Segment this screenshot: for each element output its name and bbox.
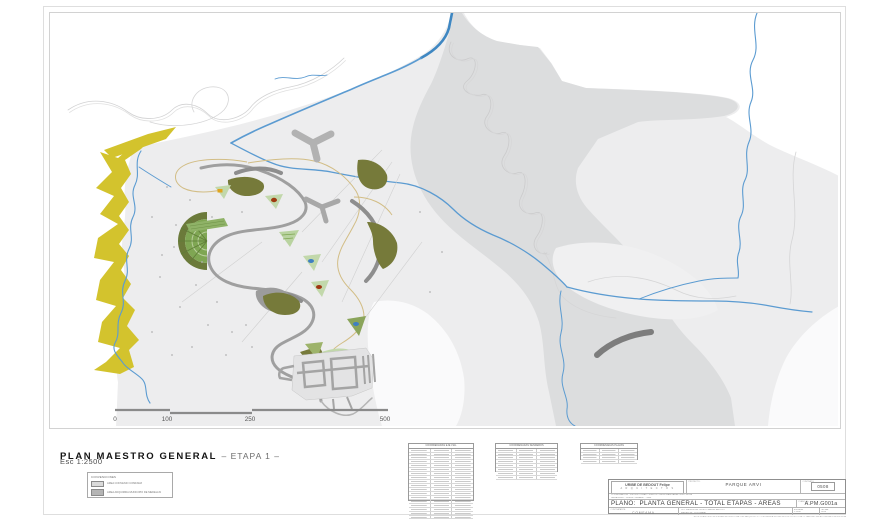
contract-label: CONTRATO:	[803, 481, 815, 483]
architect-box: URIBE DE BEDOUT Felipe A R Q U I T E C T…	[611, 481, 684, 493]
client-cell: CONTRATANTE: COMFAMA	[609, 508, 679, 515]
site-plan-map[interactable]: 0 100 250 500	[50, 13, 838, 426]
coordinate-table-body	[581, 449, 637, 465]
project-cell: PROYECTO: PARQUE ARVI NUCLEO COMFAMA	[687, 480, 801, 493]
legend-label: AREA ADQUIRIDA MUNICIPIO DE MEDELLIN	[107, 491, 161, 494]
coordinate-table-1: COORDENADAS EJE VIAL	[408, 443, 474, 501]
legend-swatch-dark	[91, 489, 104, 496]
client-label: CONTRATANTE:	[611, 509, 626, 511]
legend-item: AREA ADQUIRIDA MUNICIPIO DE MEDELLIN	[91, 489, 169, 496]
plan-title-stage: – ETAPA 1 –	[222, 451, 280, 461]
coordinate-table-body	[496, 449, 557, 481]
coordinate-table-body	[409, 449, 473, 520]
coordinate-table-row	[496, 476, 557, 480]
copyright-note: ESTE PLANO ES PROPIEDAD INTELECTUAL DEL …	[658, 516, 846, 518]
coordinate-table-3: COORDENADAS PLAZAS	[580, 443, 638, 460]
scale-label-0: 0	[113, 416, 117, 423]
legend-item: AREA CONVENIO COMFAMA	[91, 481, 169, 488]
coordinate-table-row	[409, 516, 473, 520]
project-label: PROYECTO:	[689, 481, 701, 483]
scale-label-250: 250	[245, 416, 256, 423]
contract-number: 0508	[811, 482, 834, 491]
drawing-sheet: 0 100 250 500 PLAN MAESTRO GENERAL – ETA…	[0, 0, 882, 526]
title-block: URIBE DE BEDOUT Felipe A R Q U I T E C T…	[608, 479, 846, 514]
title-block-row-2: PLANO: PLANTA GENERAL - TOTAL ETAPAS - A…	[609, 500, 845, 508]
meta-cell: ESCALA: 1:2500 FECHA: 05.08	[793, 508, 845, 515]
legend-title: CONVENCIONES	[91, 475, 169, 479]
consultants-line: PAISAJISMO - DISEÑO URBANO - VIAS	[609, 497, 845, 500]
architect-subtitle: A R Q U I T E C T O S	[614, 487, 681, 490]
date-meta: FECHA: 05.08	[820, 508, 846, 515]
scale-value: 1:2500	[794, 511, 818, 514]
title-block-row-1: URIBE DE BEDOUT Felipe A R Q U I T E C T…	[609, 480, 845, 494]
legend-swatch-light	[91, 481, 104, 488]
scale-label-500: 500	[380, 416, 391, 423]
coordinate-table-2: COORDENADAS SENDEROS	[495, 443, 558, 472]
sheet-code-cell: PLANO No. A.PM.G001a	[797, 500, 845, 507]
date-value: 05.08	[821, 511, 845, 514]
address-cell: CLL 10A SUR No. 30-50 LOMA DE BEDOUT MED…	[679, 508, 793, 515]
scale-label-100: 100	[162, 416, 173, 423]
coordinate-table-row	[581, 460, 637, 464]
sheet-code: A.PM.G001a	[805, 501, 838, 507]
contract-cell: CONTRATO: 0508	[801, 480, 845, 493]
plano-label: PLANO:	[611, 500, 636, 507]
legend-box: CONVENCIONES AREA CONVENIO COMFAMA AREA …	[87, 472, 173, 498]
plano-cell: PLANO: PLANTA GENERAL - TOTAL ETAPAS - A…	[609, 500, 797, 507]
sheet-code-label: PLANO No.	[799, 501, 809, 503]
plan-scale-note: Esc 1:2500	[60, 457, 103, 466]
plano-title: PLANTA GENERAL - TOTAL ETAPAS - AREAS	[640, 500, 781, 507]
legend-label: AREA CONVENIO COMFAMA	[107, 482, 142, 485]
client-name: COMFAMA	[609, 511, 678, 515]
title-block-row-3: CONTRATANTE: COMFAMA CLL 10A SUR No. 30-…	[609, 508, 845, 515]
scale-meta: ESCALA: 1:2500	[793, 508, 820, 515]
architect-cell: URIBE DE BEDOUT Felipe A R Q U I T E C T…	[609, 480, 687, 493]
address-line: MEDELLIN - COLOMBIA	[681, 512, 790, 515]
